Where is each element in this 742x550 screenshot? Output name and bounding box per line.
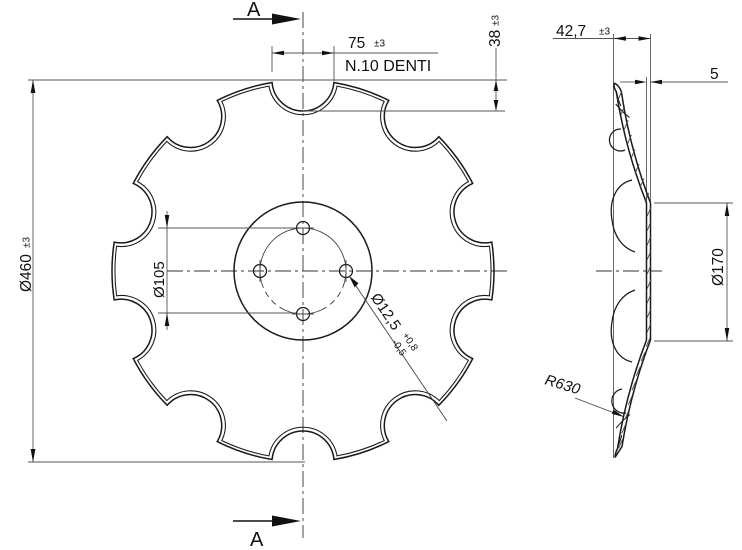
notch-depth-tolerance: ±3 [491,15,502,26]
flat-diameter-label: Ø170 [710,248,727,286]
dish-depth-tolerance: ±3 [599,27,610,38]
thickness-label: 5 [710,66,719,83]
section-label-top: A [247,0,261,21]
dish-depth-label: 42,7 [556,23,586,40]
section-label-bottom: A [250,529,264,550]
drawing-sheet: Ø460 ±3 75 ±3 N.10 DENTI 38 ±3 [0,0,742,550]
outer-diameter-label: Ø460 [18,254,35,292]
tooth-width-tolerance: ±3 [374,39,385,50]
notch-depth-label: 38 [487,30,504,47]
tooth-width-label: 75 [348,35,365,52]
bolt-circle-label: Ø105 [151,261,168,298]
teeth-count-note: N.10 DENTI [345,58,431,75]
technical-drawing: Ø460 ±3 75 ±3 N.10 DENTI 38 ±3 [0,0,742,550]
outer-diameter-tolerance: ±3 [22,237,33,248]
